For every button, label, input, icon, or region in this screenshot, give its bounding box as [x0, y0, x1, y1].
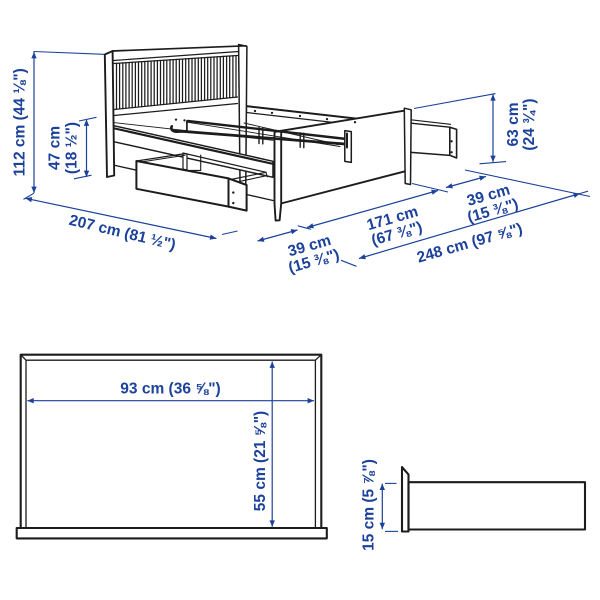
svg-text:63 cm: 63 cm — [505, 103, 522, 147]
svg-text:15 cm (5 ⅞"): 15 cm (5 ⅞") — [361, 459, 378, 551]
svg-text:55 cm (21 ⅝"): 55 cm (21 ⅝") — [252, 411, 269, 511]
svg-text:112 cm (44 ⅛"): 112 cm (44 ⅛") — [11, 68, 28, 176]
svg-text:93 cm (36 ⅝"): 93 cm (36 ⅝") — [120, 381, 220, 398]
svg-text:(24 ¾"): (24 ¾") — [521, 98, 538, 150]
svg-text:47 cm: 47 cm — [46, 126, 63, 170]
svg-text:(18 ½"): (18 ½") — [64, 122, 81, 174]
